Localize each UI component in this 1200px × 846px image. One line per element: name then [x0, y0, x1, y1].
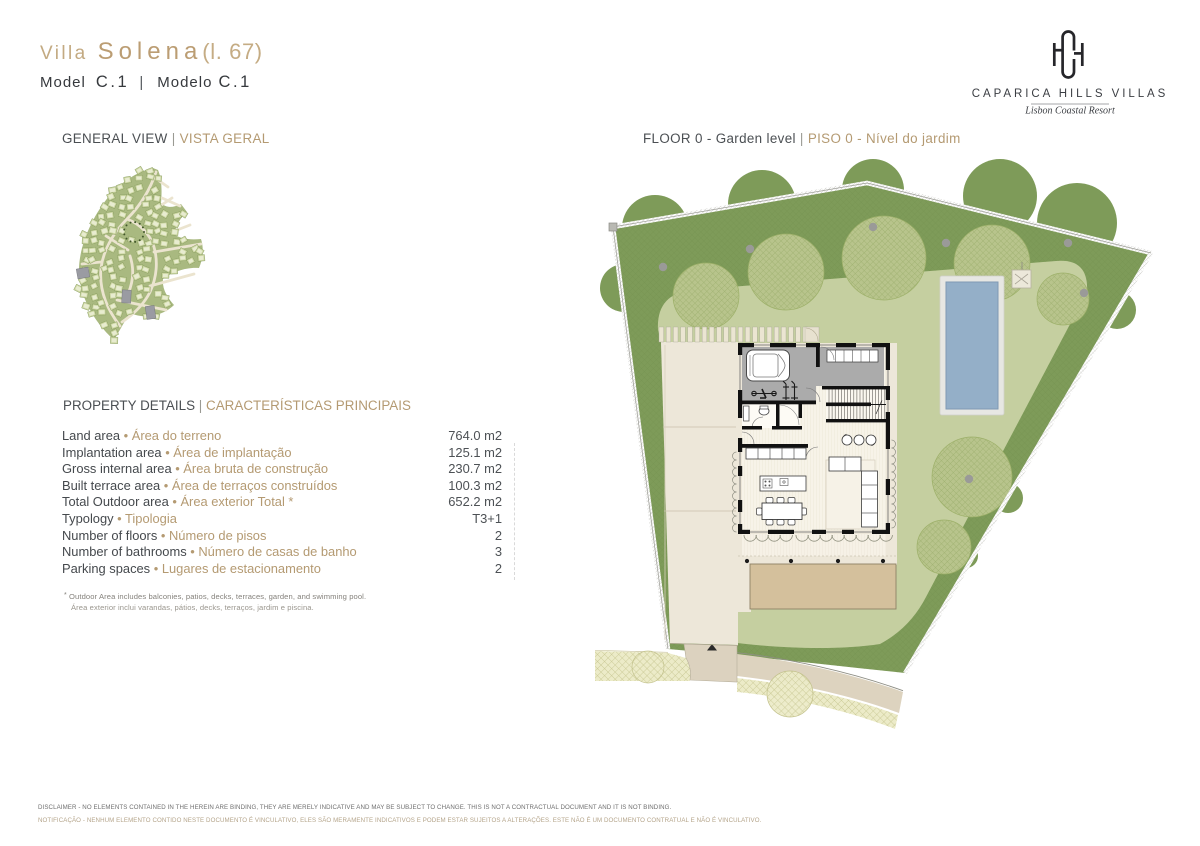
- svg-text:CAPARICA HILLS VILLAS: CAPARICA HILLS VILLAS: [972, 88, 1169, 100]
- svg-text:Lisbon Coastal Resort: Lisbon Coastal Resort: [1024, 106, 1115, 117]
